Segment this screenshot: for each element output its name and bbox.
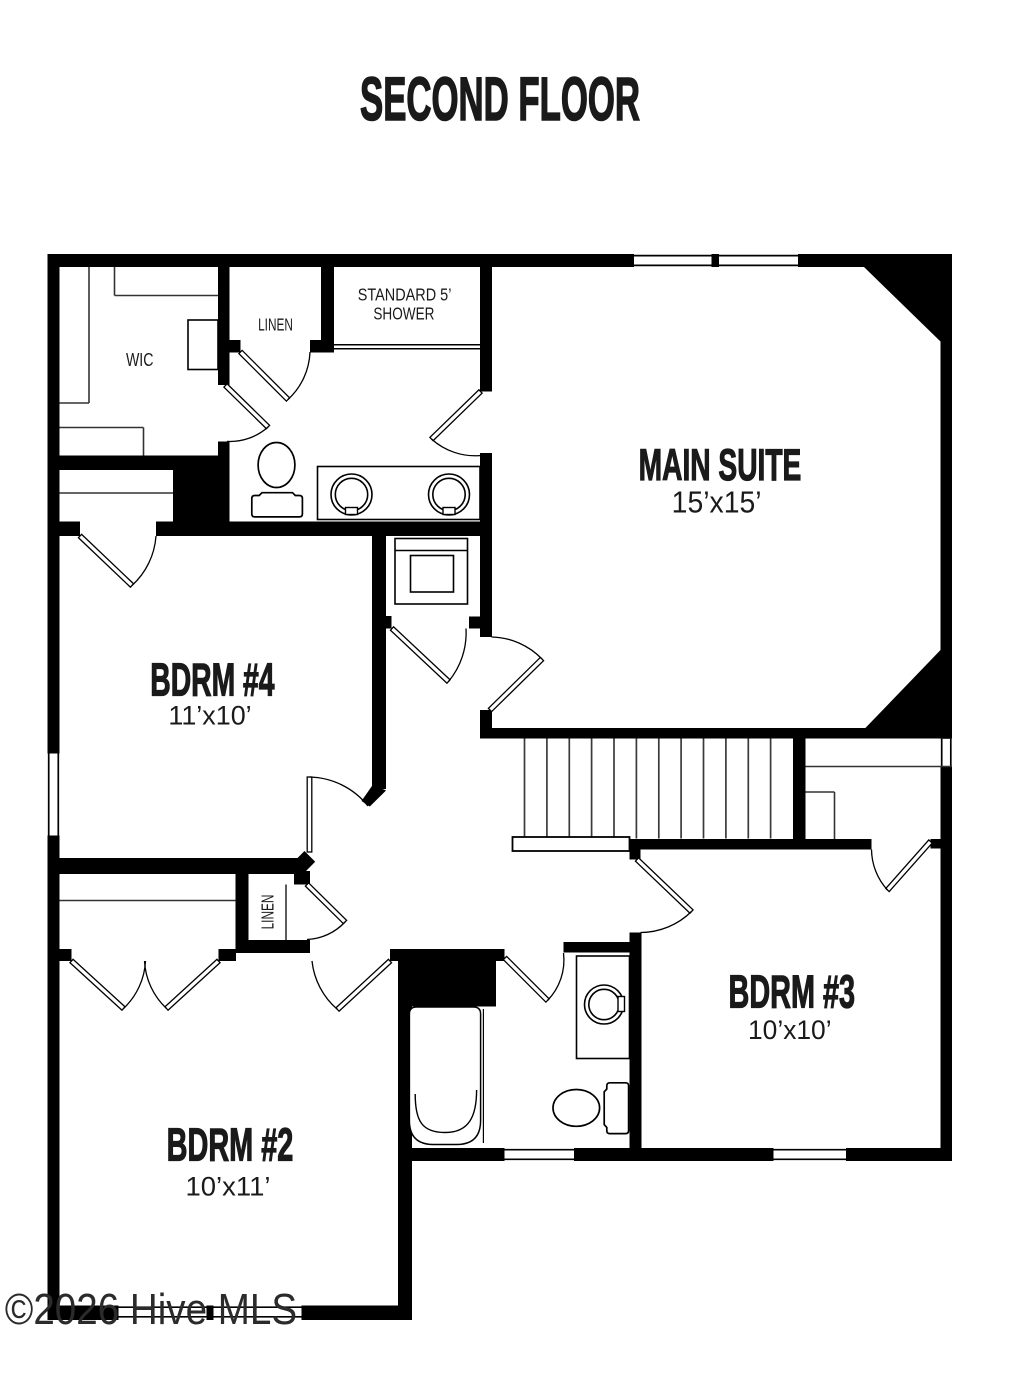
svg-text:BDRM #2: BDRM #2: [167, 1120, 294, 1171]
svg-text:BDRM #3: BDRM #3: [729, 967, 855, 1018]
svg-text:LINEN: LINEN: [258, 315, 293, 335]
svg-text:MAIN SUITE: MAIN SUITE: [639, 439, 802, 489]
svg-text:LINEN: LINEN: [258, 895, 278, 930]
svg-text:11’x10’: 11’x10’: [168, 700, 251, 730]
svg-text:BDRM #4: BDRM #4: [150, 655, 274, 707]
svg-text:10’x10’: 10’x10’: [748, 1014, 832, 1044]
svg-text:SHOWER: SHOWER: [373, 305, 434, 324]
svg-text:SECOND FLOOR: SECOND FLOOR: [360, 65, 640, 134]
svg-text:10’x11’: 10’x11’: [186, 1170, 271, 1201]
svg-text:STANDARD 5’: STANDARD 5’: [358, 287, 452, 305]
svg-text:©2026 Hive MLS: ©2026 Hive MLS: [5, 1285, 297, 1334]
svg-text:15’x15’: 15’x15’: [672, 486, 762, 520]
svg-text:WIC: WIC: [126, 349, 154, 370]
